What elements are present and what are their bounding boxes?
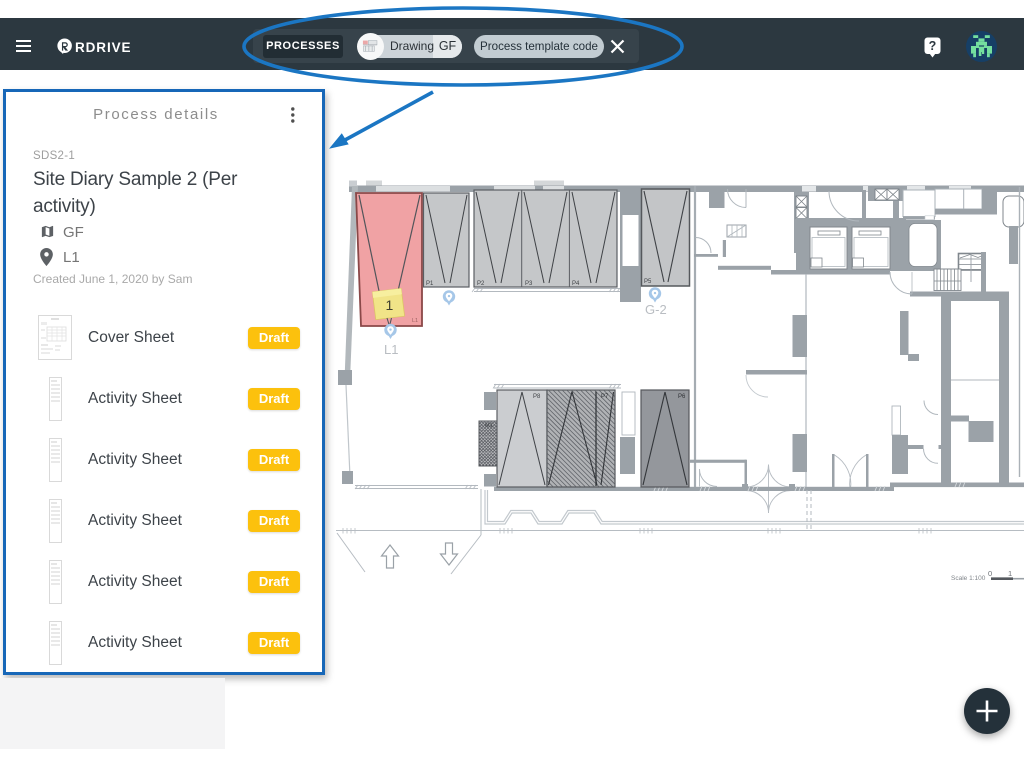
svg-text:L1: L1: [412, 318, 418, 324]
svg-text:P5: P5: [644, 279, 652, 285]
svg-text:P6: P6: [678, 394, 686, 400]
svg-text:0: 0: [988, 569, 992, 578]
svg-text:1: 1: [386, 297, 394, 313]
svg-text:P1: P1: [426, 281, 434, 287]
svg-text:P2: P2: [477, 281, 485, 287]
svg-text:Scale 1:100: Scale 1:100: [951, 575, 986, 582]
svg-text:P8: P8: [533, 394, 541, 400]
svg-text:P4: P4: [572, 281, 580, 287]
svg-text:P3: P3: [525, 281, 533, 287]
svg-text:1: 1: [1008, 569, 1012, 578]
svg-text:M1: M1: [485, 423, 493, 429]
svg-text:L1: L1: [384, 342, 398, 357]
svg-text:P7: P7: [601, 394, 609, 400]
svg-text:G-2: G-2: [645, 302, 667, 317]
